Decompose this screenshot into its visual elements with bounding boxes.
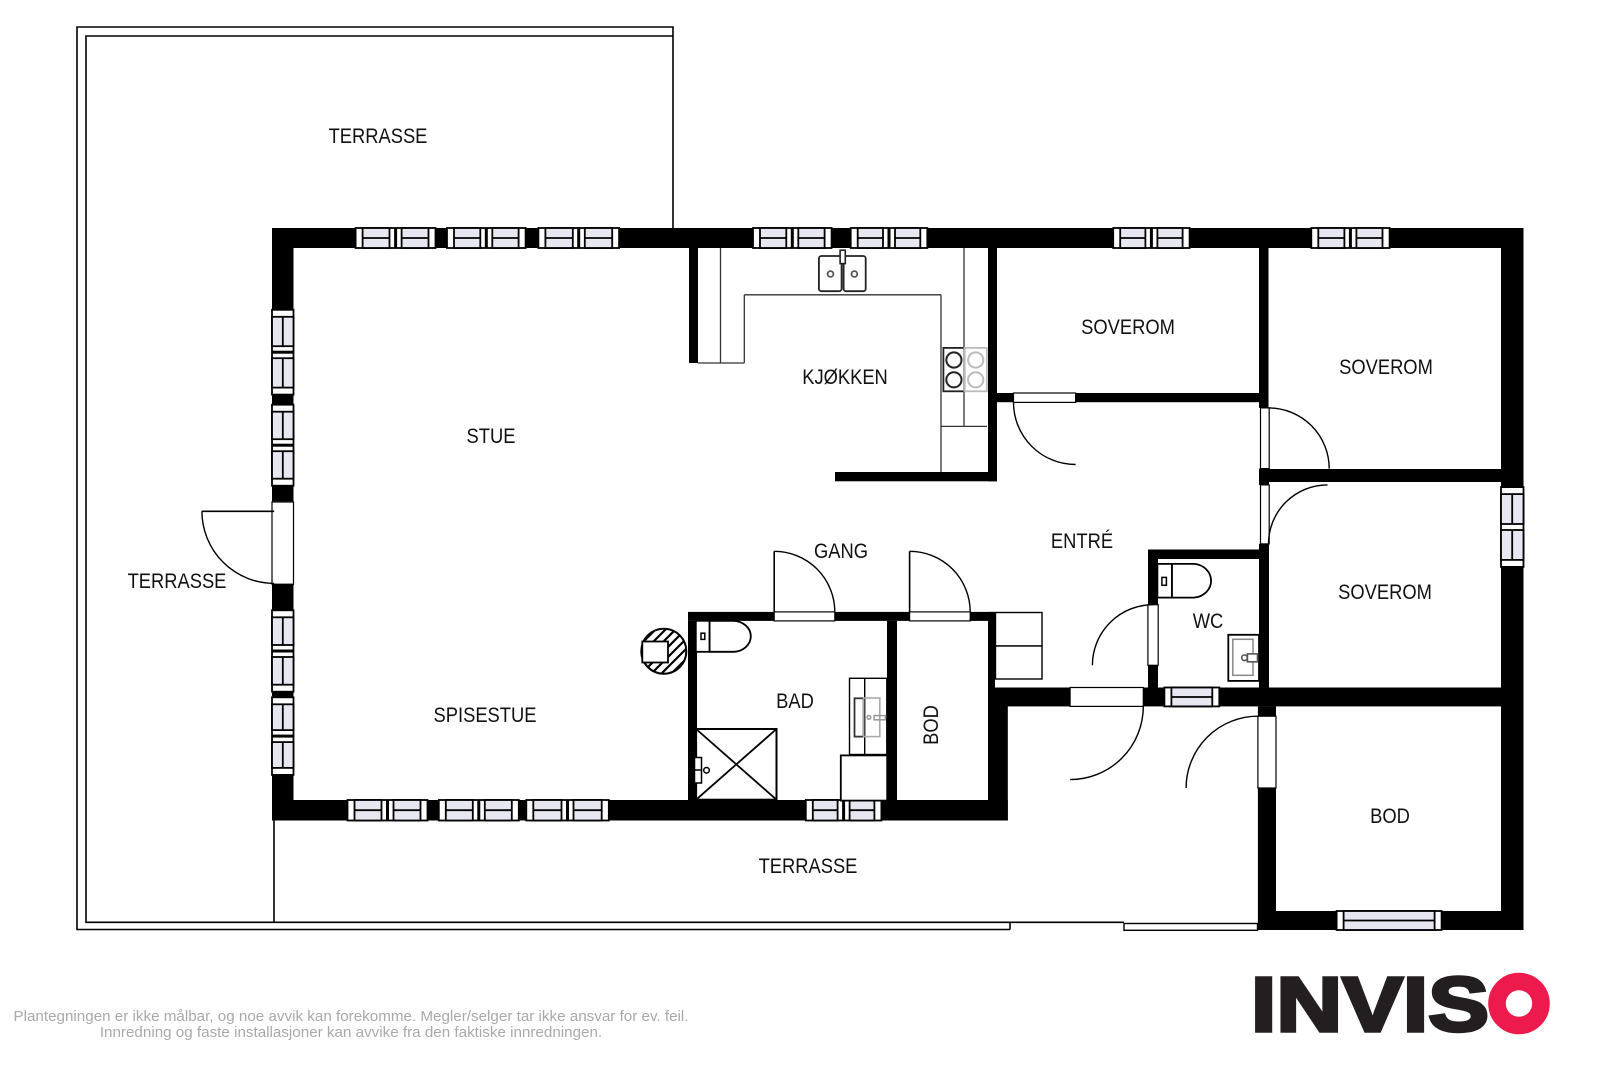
svg-text:BOD: BOD: [1370, 805, 1410, 829]
svg-text:STUE: STUE: [467, 425, 516, 449]
svg-text:SOVEROM: SOVEROM: [1339, 356, 1433, 380]
svg-text:INVIS: INVIS: [1251, 962, 1489, 1048]
svg-text:SOVEROM: SOVEROM: [1338, 581, 1432, 605]
svg-text:ENTRÉ: ENTRÉ: [1051, 529, 1113, 554]
svg-text:TERRASSE: TERRASSE: [759, 855, 858, 879]
svg-text:GANG: GANG: [814, 540, 868, 564]
svg-text:TERRASSE: TERRASSE: [128, 570, 227, 594]
svg-text:BAD: BAD: [776, 690, 814, 714]
svg-text:Innredning og faste installasj: Innredning og faste installasjoner kan a…: [100, 1024, 602, 1041]
svg-text:TERRASSE: TERRASSE: [329, 125, 428, 149]
svg-text:SPISESTUE: SPISESTUE: [434, 704, 537, 728]
svg-text:BOD: BOD: [920, 705, 944, 745]
svg-text:WC: WC: [1193, 610, 1224, 634]
svg-text:Plantegningen er ikke målbar,: Plantegningen er ikke målbar, og noe avv…: [13, 1008, 688, 1025]
svg-text:SOVEROM: SOVEROM: [1081, 316, 1175, 340]
svg-text:KJØKKEN: KJØKKEN: [802, 366, 888, 390]
